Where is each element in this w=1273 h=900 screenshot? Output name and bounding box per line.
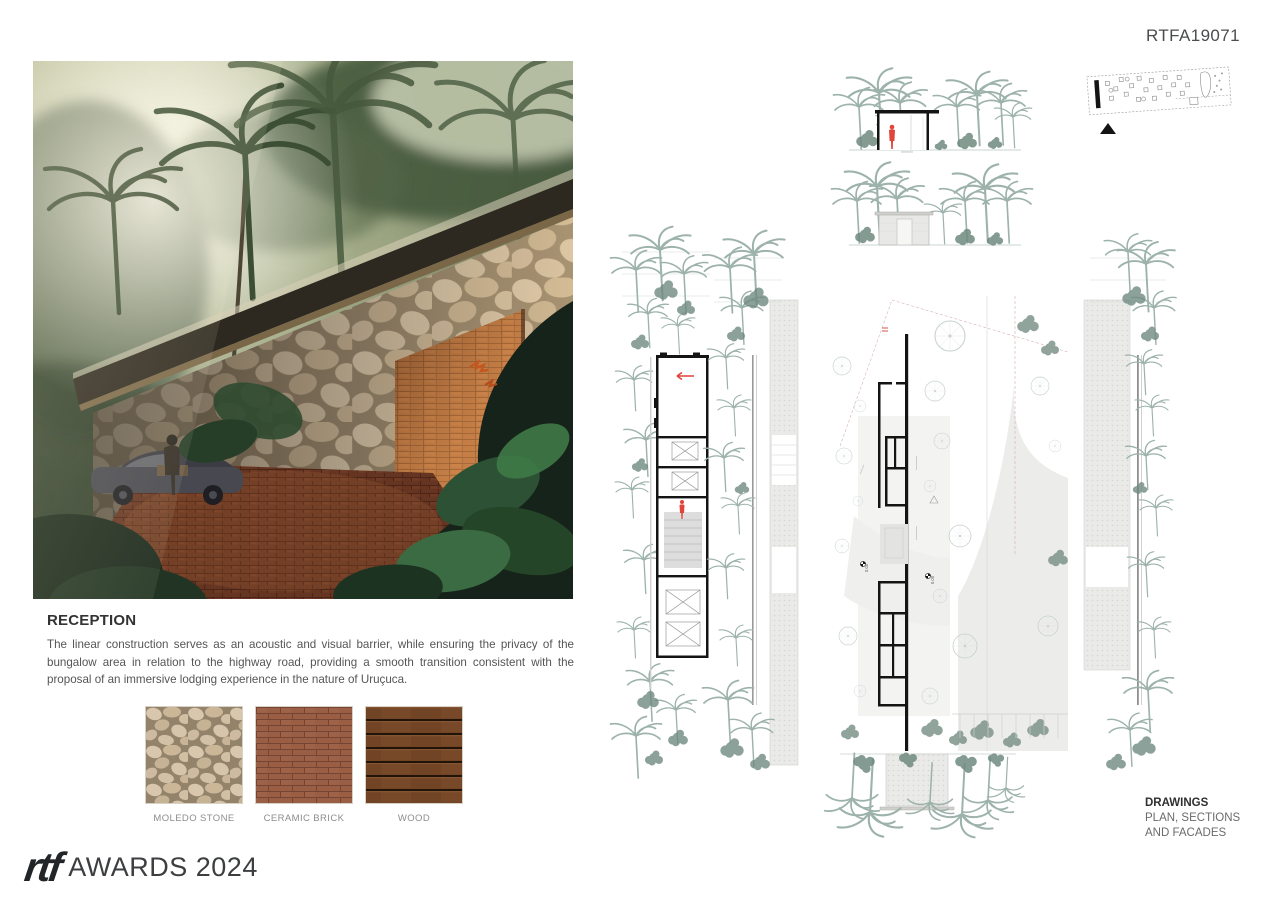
presentation-board: RTFA19071 [0,0,1273,900]
svg-text:0.00: 0.00 [930,575,935,584]
elevation-drawing [845,155,1025,250]
facade-strip-right [1080,238,1168,778]
drawings-subtitle-1: PLAN, SECTIONS [1145,811,1240,826]
awards-text: AWARDS 2024 [68,852,258,883]
ceramic-brick-swatch [255,706,353,804]
moledo-stone-swatch [145,706,243,804]
render-art [33,61,573,599]
svg-text:0.00: 0.00 [864,563,869,572]
material-swatches: MOLEDO STONE CERAMIC BRICK WOOD [145,706,463,824]
material-label: CERAMIC BRICK [255,813,353,824]
linear-plan-strip [620,230,715,770]
material-ceramic-brick: CERAMIC BRICK [255,706,353,824]
north-arrow-icon [1100,123,1116,134]
section-title: RECEPTION [47,612,574,629]
section-body: The linear construction serves as an aco… [47,636,574,689]
drawings-label-block: DRAWINGS PLAN, SECTIONS AND FACADES [1145,797,1240,841]
facade-strip-left [712,238,798,778]
reception-render-image [33,61,573,599]
material-label: WOOD [365,813,463,824]
drawings-subtitle-2: AND FACADES [1145,826,1240,841]
wood-swatch [365,706,463,804]
rtf-logo-icon: rtf [22,849,61,886]
reception-text-block: RECEPTION The linear construction serves… [47,612,574,689]
key-plan [1080,60,1235,140]
material-moledo-stone: MOLEDO STONE [145,706,243,824]
site-plan: 0.00 0.00 [830,296,1068,751]
entry-code: RTFA19071 [1146,26,1240,46]
material-wood: WOOD [365,706,463,824]
section-drawing [845,55,1025,155]
mirrored-facade-drawing [836,750,1021,868]
drawings-title: DRAWINGS [1145,797,1240,809]
rtf-awards-logo: rtf AWARDS 2024 [25,849,258,886]
material-label: MOLEDO STONE [145,813,243,824]
